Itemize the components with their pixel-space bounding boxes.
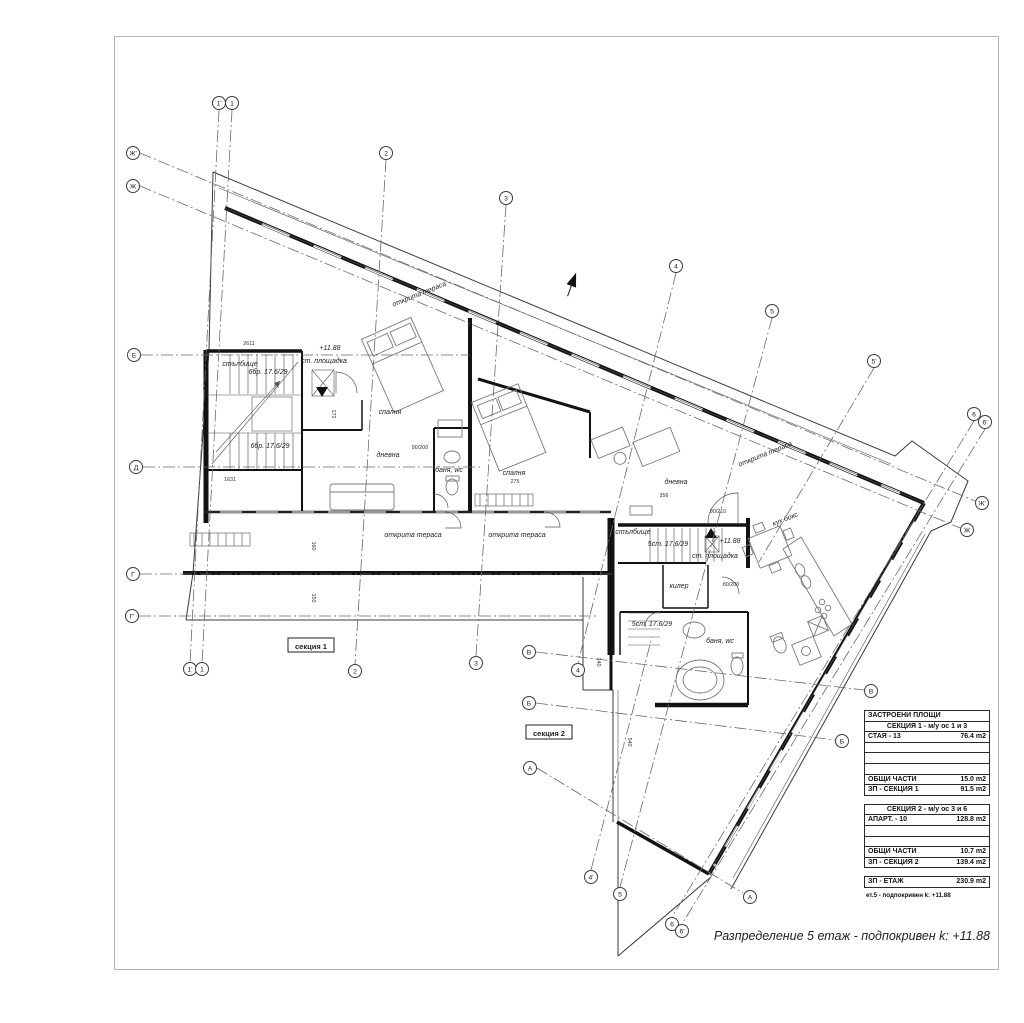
svg-text:А: А [528, 765, 533, 772]
grid-marker-5: 5 [766, 305, 779, 318]
svg-text:4: 4 [576, 667, 580, 674]
svg-text:Г': Г' [130, 613, 135, 620]
room-label: баня, wc [435, 466, 463, 474]
areas-table-total: ЗП - ЕТАЖ230.9 m2 [864, 876, 990, 888]
north-arrow [563, 271, 581, 298]
svg-text:1: 1 [200, 666, 204, 673]
svg-text:5': 5' [871, 358, 876, 365]
dimension-label: 80/200 [723, 582, 740, 588]
svg-text:5: 5 [618, 891, 622, 898]
svg-text:4': 4' [588, 874, 593, 881]
grid-marker-Г': Г' [126, 610, 139, 623]
living-2-set [591, 411, 680, 481]
room-label: дневна [664, 478, 687, 486]
svg-text:В: В [527, 649, 532, 656]
room-label: спалня [503, 470, 526, 477]
tv-2 [630, 506, 652, 515]
elevator-right [705, 536, 719, 552]
dimension-label: 160 [310, 542, 316, 551]
grid-marker-В: В [865, 685, 878, 698]
grid-marker-Ж: Ж [961, 524, 974, 537]
svg-text:Е: Е [132, 352, 137, 359]
bathroom-2-fixtures [676, 622, 743, 700]
grid-marker-4: 4 [670, 260, 683, 273]
areas-table-row [864, 753, 990, 764]
svg-text:А: А [748, 894, 753, 901]
grid-marker-4': 4' [585, 871, 598, 884]
room-label: спалня [379, 409, 402, 416]
grid-marker-1: 1 [196, 663, 209, 676]
areas-table-row [864, 837, 990, 848]
svg-text:5: 5 [770, 308, 774, 315]
svg-text:3: 3 [474, 660, 478, 667]
building-outline [186, 172, 968, 956]
section-tag: секция 1 [288, 638, 334, 652]
sofa-1 [330, 484, 394, 510]
grid-marker-3: 3 [500, 192, 513, 205]
areas-table-row: ЗП - СЕКЦИЯ 2139.4 m2 [864, 858, 990, 869]
grid-marker-2: 2 [380, 147, 393, 160]
dimension-label: 2611 [243, 341, 255, 347]
grid-marker-Ж': Ж' [127, 147, 140, 160]
grid-marker-Д: Д [130, 461, 143, 474]
svg-text:6: 6 [972, 411, 976, 418]
grid-marker-5: 5 [614, 888, 627, 901]
grid-marker-Ж: Ж [127, 180, 140, 193]
room-label: ст. площадка [692, 552, 738, 560]
grid-marker-Г: Г [127, 568, 140, 581]
room-label: ст. площадка [301, 357, 347, 365]
walls [183, 208, 924, 874]
areas-table-row [864, 826, 990, 837]
areas-table-section: СЕКЦИЯ 2 - м/у ос 3 и 6АПАРТ. - 10128.8 … [864, 804, 990, 869]
areas-table-footnote: ет.5 - подпокривен k: +11.88 [864, 892, 990, 899]
areas-table-row: СЕКЦИЯ 2 - м/у ос 3 и 6 [864, 805, 990, 816]
grid-marker-1: 1 [226, 97, 239, 110]
areas-table-row: ОБЩИ ЧАСТИ10.7 m2 [864, 847, 990, 858]
grid-marker-5': 5' [868, 355, 881, 368]
svg-text:Ж: Ж [130, 183, 137, 190]
room-label: кух.бокс [771, 510, 799, 528]
room-label: открита тераса [384, 532, 441, 539]
svg-text:секция 2: секция 2 [533, 729, 565, 738]
room-label: баня, wc [706, 637, 734, 645]
room-label: стълбище [615, 528, 650, 536]
svg-text:В: В [869, 688, 874, 695]
svg-text:Ж': Ж' [129, 150, 137, 157]
grid-marker-1': 1' [213, 97, 226, 110]
grid-marker-Е: Е [128, 349, 141, 362]
dimension-label: 275 [511, 479, 520, 485]
room-label: 5ст. 17.6/29 [648, 541, 688, 548]
areas-table-row: ЗП - СЕКЦИЯ 191.5 m2 [864, 785, 990, 796]
dimension-label: 140 [595, 658, 601, 667]
areas-table-row: ОБЩИ ЧАСТИ15.0 m2 [864, 775, 990, 786]
grid-line [537, 768, 743, 893]
svg-text:2: 2 [353, 668, 357, 675]
drawing-sheet: 1'123455'66'Ж'ЖЕДГГ'ВБА1'12344'566'АБВЖЖ… [0, 0, 1024, 1023]
grid-marker-Б: Б [523, 697, 536, 710]
room-label: 6бр. 17.6/29 [249, 368, 288, 376]
svg-text:3: 3 [504, 195, 508, 202]
room-label: 6бр. 17.6/29 [251, 442, 290, 450]
svg-text:Г: Г [131, 571, 135, 578]
level-mark-left [316, 387, 328, 397]
grid-marker-2: 2 [349, 665, 362, 678]
svg-text:6: 6 [670, 921, 674, 928]
dimension-label: 90/200 [412, 445, 429, 451]
wardrobe-1 [190, 533, 250, 546]
room-label: стълбище [222, 360, 257, 368]
grid-marker-4: 4 [572, 664, 585, 677]
grid-line [536, 703, 835, 740]
shower [792, 636, 822, 665]
room-label: открита тераса [488, 532, 545, 539]
dimension-label: 1631 [224, 477, 236, 483]
svg-text:1': 1' [216, 100, 221, 107]
dimension-label: 90/210 [710, 509, 727, 515]
room-label: килер [670, 583, 689, 590]
svg-text:1: 1 [230, 100, 234, 107]
areas-table-row [864, 743, 990, 754]
grid-line [759, 368, 874, 562]
svg-text:Ж': Ж' [978, 500, 986, 507]
grid-marker-1': 1' [184, 663, 197, 676]
grid-marker-6: 6 [968, 408, 981, 421]
dimension-label: 540 [626, 738, 632, 747]
areas-table-row: СЕКЦИЯ 1 - м/у ос 1 и 3 [864, 722, 990, 733]
toilet-2 [770, 632, 788, 655]
grid-line [190, 110, 219, 663]
grid-line [476, 205, 506, 656]
level-mark-right [705, 528, 717, 538]
svg-text:2: 2 [384, 150, 388, 157]
room-label: +11.88 [719, 538, 740, 545]
grid-line [140, 186, 960, 528]
grid-marker-Ж': Ж' [976, 497, 989, 510]
grid-lines [139, 110, 985, 924]
areas-table-row: ЗАСТРОЕНИ ПЛОЩИ [864, 711, 990, 722]
room-label: открита тераса [738, 441, 794, 469]
dimension-label: 172 [330, 410, 336, 419]
grid-marker-6': 6' [979, 416, 992, 429]
areas-table-row: СТАЯ - 1376.4 m2 [864, 732, 990, 743]
room-label: +11.88 [319, 345, 340, 352]
svg-text:секция 1: секция 1 [295, 642, 327, 651]
kitchen-counter [783, 537, 852, 636]
areas-table-row [864, 764, 990, 775]
section-tag: секция 2 [526, 725, 572, 739]
grid-marker-Б: Б [836, 735, 849, 748]
svg-text:Б: Б [840, 738, 845, 745]
room-label: 5ст. 17.6/29 [632, 621, 672, 628]
areas-table-row: ЗП - ЕТАЖ230.9 m2 [864, 877, 990, 888]
room-label: дневна [376, 451, 399, 459]
svg-text:Б: Б [527, 700, 532, 707]
areas-table: ЗАСТРОЕНИ ПЛОЩИСЕКЦИЯ 1 - м/у ос 1 и 3СТ… [864, 710, 990, 899]
svg-text:6': 6' [982, 419, 987, 426]
grid-marker-3: 3 [470, 657, 483, 670]
svg-text:1': 1' [187, 666, 192, 673]
svg-text:6': 6' [679, 928, 684, 935]
areas-table-section: ЗАСТРОЕНИ ПЛОЩИСЕКЦИЯ 1 - м/у ос 1 и 3СТ… [864, 710, 990, 796]
wardrobe-2 [475, 494, 533, 506]
sheet-title: Разпределение 5 етаж - подпокривен k: +1… [714, 929, 990, 943]
grid-marker-А: А [524, 762, 537, 775]
room-labels: открита терасаоткрита терасаоткрита тера… [222, 281, 799, 645]
svg-text:Ж: Ж [964, 527, 971, 534]
grid-marker-В: В [523, 646, 536, 659]
grid-marker-А: А [744, 891, 757, 904]
areas-table-row: АПАРТ. - 10128.8 m2 [864, 815, 990, 826]
grid-line [578, 273, 676, 663]
dimension-label: 356 [660, 493, 669, 499]
grid-line [536, 652, 864, 690]
grid-marker-6': 6' [676, 925, 689, 938]
svg-text:4: 4 [674, 263, 678, 270]
svg-text:Д: Д [134, 464, 139, 471]
dimension-label: 150 [310, 594, 316, 603]
